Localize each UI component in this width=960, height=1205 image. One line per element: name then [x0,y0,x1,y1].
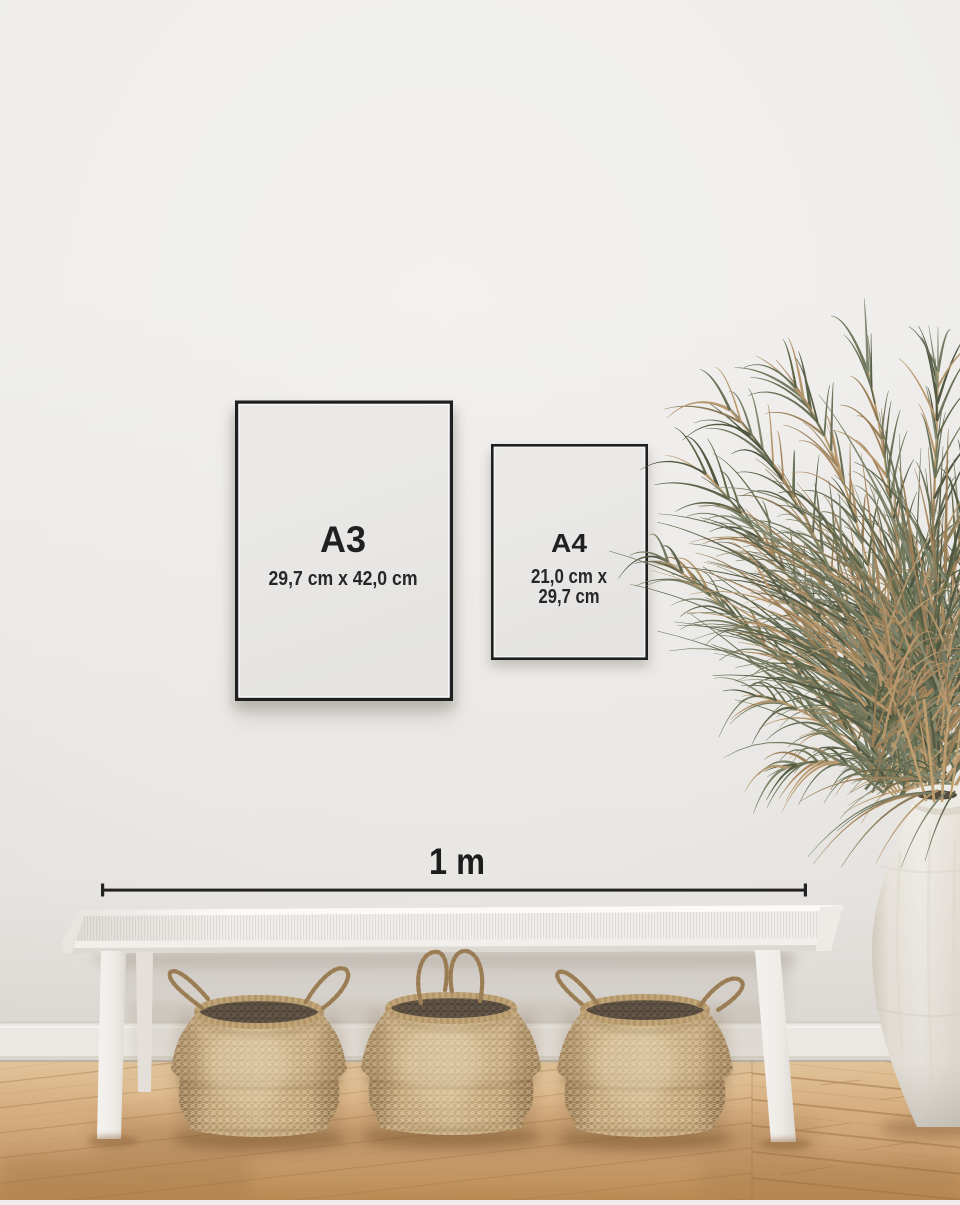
svg-text:21,0 cm x: 21,0 cm x [531,566,607,588]
svg-text:A4: A4 [551,528,588,558]
svg-text:A3: A3 [320,519,366,560]
svg-text:29,7 cm x 42,0 cm: 29,7 cm x 42,0 cm [269,567,418,590]
svg-text:1 m: 1 m [429,841,485,882]
svg-text:29,7 cm: 29,7 cm [539,586,600,608]
